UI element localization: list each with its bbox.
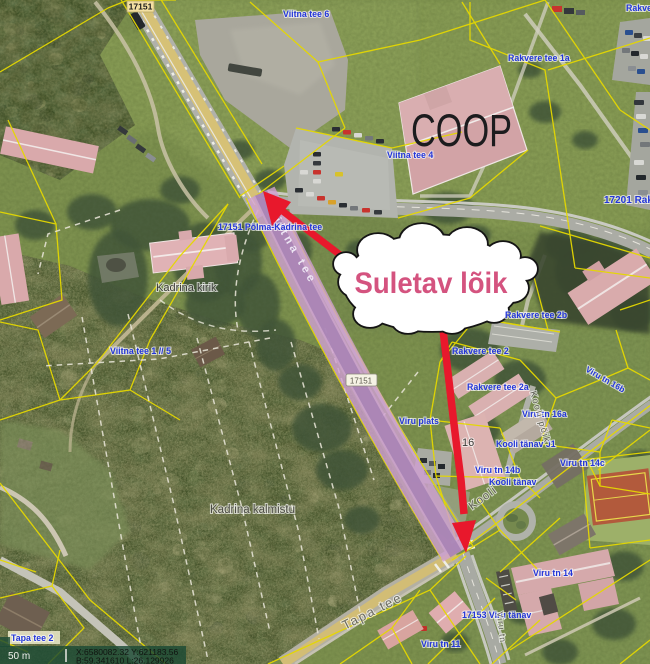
svg-text:Rakvere tee 2a: Rakvere tee 2a bbox=[467, 382, 529, 392]
svg-text:16: 16 bbox=[462, 437, 474, 449]
svg-text:Kadrina kirik: Kadrina kirik bbox=[156, 282, 217, 294]
svg-text:Suletav lõik: Suletav lõik bbox=[355, 267, 508, 300]
svg-text:COOP: COOP bbox=[411, 105, 512, 156]
svg-text:Viitna tee 1 // 5: Viitna tee 1 // 5 bbox=[110, 346, 171, 356]
svg-text:Rakvere tee 2b: Rakvere tee 2b bbox=[505, 310, 568, 320]
svg-text:Viitna tee 6: Viitna tee 6 bbox=[283, 9, 329, 19]
svg-text:50 m: 50 m bbox=[8, 651, 30, 662]
svg-text:Viru plats: Viru plats bbox=[399, 416, 439, 426]
svg-text:Rakvere: Rakvere bbox=[626, 3, 650, 13]
svg-text:Viru tn 14c: Viru tn 14c bbox=[560, 458, 605, 468]
svg-text:17151: 17151 bbox=[350, 377, 373, 386]
svg-text:17201 Rakvere: 17201 Rakvere bbox=[604, 195, 650, 206]
svg-text:Kooli tänav: Kooli tänav bbox=[489, 477, 537, 487]
svg-text:17151: 17151 bbox=[129, 2, 153, 12]
svg-text:Viru tn 14: Viru tn 14 bbox=[533, 568, 573, 578]
svg-text:Viru tn 14b: Viru tn 14b bbox=[475, 465, 521, 475]
svg-text:Tapa tee 2: Tapa tee 2 bbox=[11, 633, 53, 643]
svg-text:B:59.341610 L:26.129926: B:59.341610 L:26.129926 bbox=[76, 656, 174, 664]
svg-text:17151 Põlma-Kadrina tee: 17151 Põlma-Kadrina tee bbox=[218, 222, 322, 232]
svg-text:Kadrina kalmistu: Kadrina kalmistu bbox=[210, 504, 295, 516]
svg-text:Rakvere tee 1a: Rakvere tee 1a bbox=[508, 53, 570, 63]
svg-text:Viru tn 11: Viru tn 11 bbox=[421, 639, 461, 649]
svg-text:Rakvere tee 2: Rakvere tee 2 bbox=[452, 346, 509, 356]
